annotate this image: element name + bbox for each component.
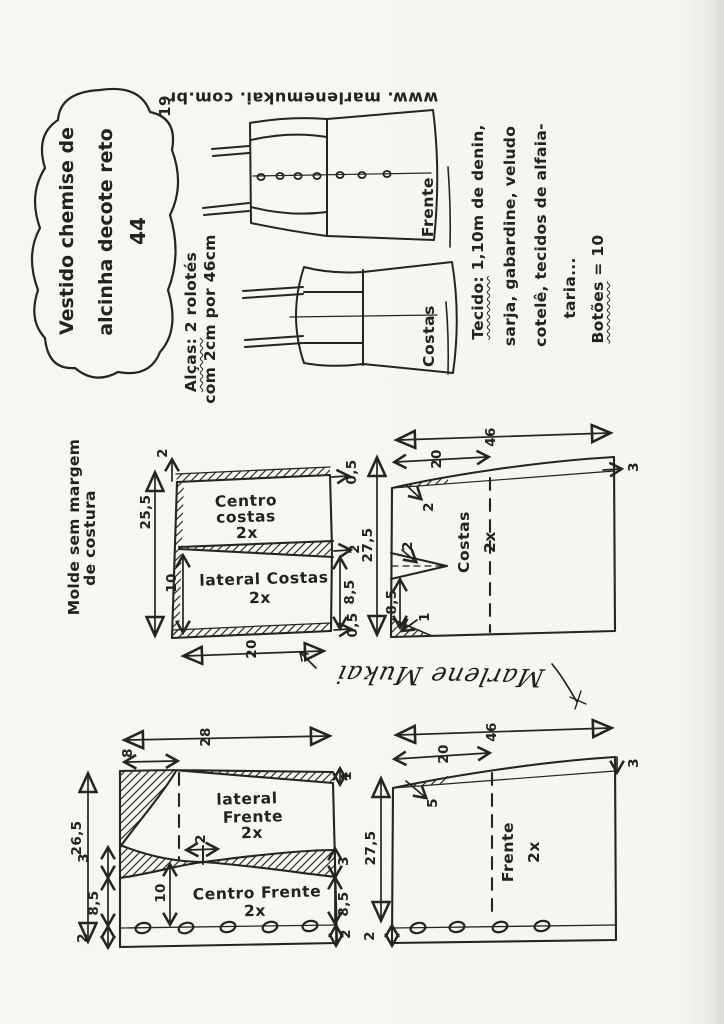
back-piece-label: Costas2x — [451, 511, 503, 573]
measure-back-1: 1 — [417, 612, 433, 622]
straps-note-line-1: Alças: 2 rolotés — [182, 252, 200, 392]
measure-front-panels-width: 28 — [198, 727, 214, 747]
measure-back-panels-right-bottom: 0,5 — [345, 612, 361, 637]
fabric-note-line-3: cotelê, tecidos de alfaia- — [532, 123, 550, 347]
piece-front-panels — [88, 736, 340, 947]
dress-front-sketch — [203, 110, 450, 247]
measure-front-partial: 20 — [436, 744, 452, 764]
measure-front-panels-left-85: 8,5 — [86, 890, 102, 915]
measure-back-85: 8,5 — [384, 589, 400, 614]
measure-back-panels-inner: 10 — [164, 573, 180, 593]
measure-back-side: 3 — [626, 462, 642, 472]
measure-front-width: 46 — [484, 722, 500, 742]
fabric-note-line-4: taria... — [561, 257, 579, 318]
back-center-panel-qty: 2x — [236, 524, 258, 543]
no-seam-allowance-note-line-2: de costura — [81, 490, 99, 586]
title-line-1: Vestido chemise de — [56, 127, 78, 335]
measure-back-partial: 20 — [429, 449, 445, 469]
straps-note-line-2: com 2cm por 46cm — [201, 234, 219, 403]
front-side-panel-label-1: lateral — [216, 789, 278, 809]
measure-front-bottom: 2 — [362, 931, 378, 941]
measure-front-panels-right-3: 3 — [336, 856, 352, 866]
sketch-back-label: Costas — [420, 305, 438, 367]
measure-front-panels-right-85: 8,5 — [336, 891, 352, 916]
measure-front-height: 27,5 — [363, 831, 379, 866]
measure-front-shoulder: 5 — [425, 798, 441, 808]
back-side-panel-label: lateral Costas — [199, 568, 329, 589]
measure-back-height: 27,5 — [360, 528, 376, 563]
title-line-2: alcinha decote reto — [95, 128, 117, 335]
measure-front-panels-right-2: 2 — [338, 929, 354, 939]
fabric-note-line-1: Tecido: 1,10m de denin, — [469, 124, 487, 339]
title-size: 44 — [126, 217, 150, 245]
measure-back-panels-top: 2 — [155, 448, 171, 458]
signature: Marlene Mukai — [333, 660, 546, 692]
sketch-front-label: Frente — [419, 177, 437, 237]
measure-back-panels-right-85: 8,5 — [342, 579, 358, 604]
piece-back-panels — [155, 461, 349, 656]
measure-back-dart: 2 — [400, 541, 416, 551]
measure-back-shoulder: 2 — [421, 502, 437, 512]
measure-front-panels-height: 26,5 — [69, 821, 85, 856]
measure-back-panels-width: 20 — [244, 639, 260, 659]
front-center-panel-label: Centro Frente — [193, 882, 322, 903]
measure-back-panels-right-top: 0,5 — [344, 459, 360, 484]
measure-front-panels-dart: 2 — [193, 834, 209, 844]
measure-front-panels-left-3: 3 — [76, 853, 92, 863]
front-center-panel-qty: 2x — [244, 902, 266, 921]
buttons-note: Botões = 10 — [589, 235, 607, 344]
measure-front-panels-right-1: 1 — [339, 771, 355, 781]
website-url: www. marlenemukai. com.br — [168, 89, 439, 108]
measure-front-panels-partial: 8 — [120, 748, 136, 758]
measure-front-panels-inner: 10 — [153, 883, 169, 903]
front-side-panel-qty: 2x — [241, 824, 263, 843]
measure-front-panels-left-2: 2 — [75, 933, 91, 943]
measure-back-panels-height: 25,5 — [138, 495, 154, 530]
measure-back-width: 46 — [483, 427, 499, 447]
scanned-pattern-page: 19 www. marlenemukai. com.br Vestido che… — [0, 0, 724, 1024]
back-side-panel-qty: 2x — [249, 589, 271, 608]
measure-front-side: 3 — [626, 758, 642, 768]
front-piece-label: Frente2x — [495, 822, 547, 882]
fabric-note-line-2: sarja, gabardine, veludo — [501, 126, 519, 346]
